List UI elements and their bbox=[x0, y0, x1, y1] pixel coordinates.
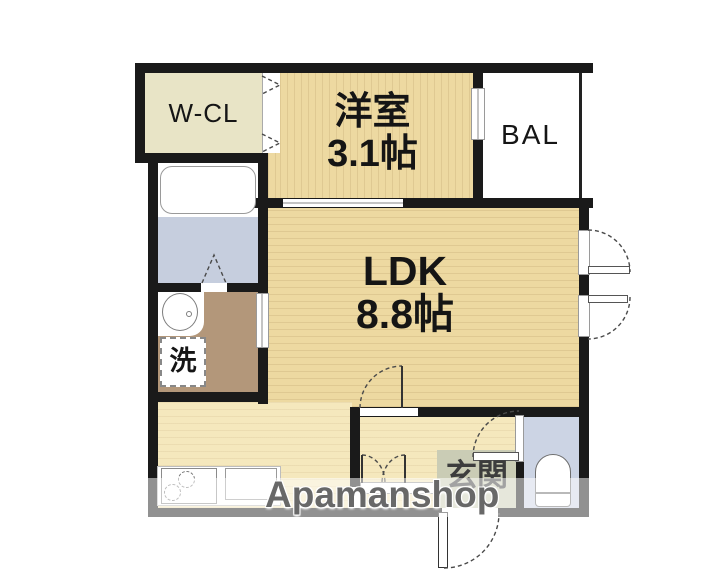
floor-plan: 洗 bbox=[0, 0, 720, 576]
closet-door-chevron-icon bbox=[262, 76, 280, 94]
folding-door-icon bbox=[202, 255, 226, 283]
door-arc-icon bbox=[444, 513, 499, 568]
closet-door-chevron-icon bbox=[262, 134, 280, 152]
door-arc-icon bbox=[588, 297, 630, 339]
door-arc-icon bbox=[473, 411, 519, 457]
door-arc-icon bbox=[588, 230, 630, 272]
door-arc-icon bbox=[360, 366, 402, 408]
watermark-text: Apamanshop bbox=[265, 474, 475, 516]
